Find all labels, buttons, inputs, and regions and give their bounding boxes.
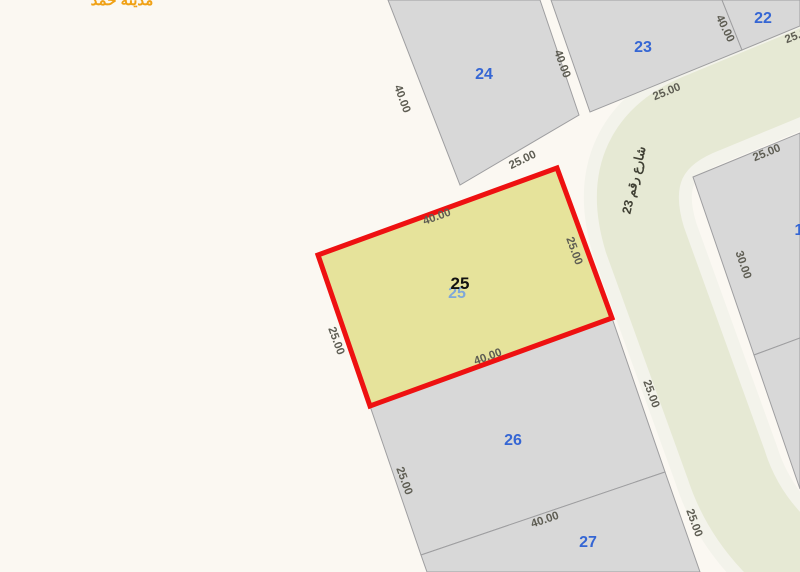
plot-22-number: 22 [754, 10, 772, 27]
plot-27-number: 27 [579, 534, 597, 551]
parcel-map: شارع رقم 2340.0040.0025.0025.0040.0025.0… [0, 0, 800, 572]
selected-plot-number: 25 [451, 274, 470, 293]
plot-24-number: 24 [475, 66, 493, 83]
plot-right-upper-number: 1 [795, 222, 800, 239]
area-name-label: مدينة حمد [91, 0, 154, 9]
plot-23-number: 23 [634, 39, 652, 56]
plot-26-number: 26 [504, 432, 522, 449]
map-canvas[interactable]: شارع رقم 2340.0040.0025.0025.0040.0025.0… [0, 0, 800, 572]
